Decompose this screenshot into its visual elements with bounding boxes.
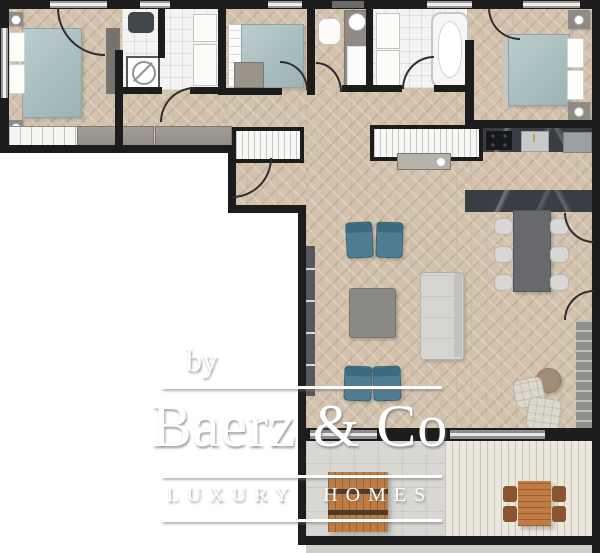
washer-drum-icon — [132, 61, 156, 85]
wall — [366, 8, 373, 92]
nightstand — [8, 12, 23, 26]
watermark-divider — [162, 386, 442, 389]
dining-chair — [494, 274, 513, 291]
pillow — [9, 32, 25, 62]
nightstand — [568, 10, 590, 29]
wall — [307, 8, 315, 95]
bathtub-basin — [438, 21, 462, 78]
vase-icon — [436, 157, 446, 167]
toilet-dark — [128, 12, 154, 33]
armchair-blue — [375, 222, 403, 259]
window — [50, 1, 107, 8]
wall — [122, 87, 162, 94]
sofa-backrest — [454, 273, 462, 357]
wall — [228, 205, 306, 213]
kitchen-island — [465, 190, 592, 212]
wall-shelf — [576, 320, 592, 432]
wall — [158, 8, 165, 58]
window — [268, 1, 302, 8]
shower-unit — [193, 14, 217, 42]
stove-icon — [486, 131, 512, 150]
watermark-divider — [162, 519, 442, 522]
watermark-tagline: LUXURY HOMES — [148, 484, 452, 507]
bathroom-cabinet — [376, 13, 400, 49]
pillow — [567, 38, 584, 68]
wall — [0, 145, 236, 153]
pillow — [9, 64, 25, 94]
nightstand — [568, 102, 590, 121]
bedroom-bench — [234, 62, 264, 88]
watermark-divider — [162, 475, 442, 478]
armchair-blue — [345, 221, 374, 258]
terrace-dining-table — [518, 481, 551, 526]
sofa — [420, 272, 464, 360]
wall — [190, 87, 225, 94]
dining-chair — [550, 246, 569, 263]
kitchen-sink-icon — [521, 131, 549, 152]
wall — [465, 40, 474, 128]
wall — [298, 536, 592, 545]
terrace-chair — [552, 486, 566, 502]
faucet-icon — [533, 134, 535, 142]
wall — [465, 120, 600, 128]
vanity-towel — [347, 46, 368, 86]
dining-chair — [494, 218, 513, 235]
sideboard — [397, 153, 451, 170]
kitchen-appliance — [563, 132, 592, 153]
bed-master-bedroom — [508, 34, 570, 106]
bathtub — [431, 12, 469, 88]
terrace-chair — [503, 506, 517, 522]
terrace-edge-strip — [306, 545, 592, 553]
lamp-icon — [11, 15, 21, 25]
sliding-door — [450, 430, 545, 439]
window — [1, 28, 8, 98]
washing-machine — [126, 56, 160, 90]
wall — [218, 8, 226, 95]
wall — [115, 50, 123, 145]
lamp-icon — [574, 15, 584, 25]
coffee-table — [349, 288, 396, 338]
entry-door — [332, 1, 364, 8]
lamp-icon — [574, 107, 584, 117]
watermark-by: by — [186, 342, 218, 379]
dining-chair — [494, 246, 513, 263]
wall — [222, 88, 282, 95]
window — [523, 1, 580, 8]
dining-chair — [550, 274, 569, 291]
vanity-sink-icon — [348, 13, 366, 31]
terrace-chair — [552, 506, 566, 522]
wall — [434, 85, 467, 92]
toilet — [318, 18, 341, 45]
shower-bench — [193, 44, 217, 86]
pillow — [567, 70, 584, 100]
floor-plan: by Baerz & Co LUXURY HOMES — [0, 0, 600, 553]
window — [140, 1, 170, 8]
terrace-chair — [503, 486, 517, 502]
window — [427, 1, 472, 8]
wall — [592, 0, 600, 553]
wall — [366, 85, 402, 92]
dining-table — [513, 210, 551, 292]
shower-unit — [376, 50, 400, 87]
table-slot — [328, 510, 388, 515]
watermark-brand: Baerz & Co — [148, 392, 452, 461]
